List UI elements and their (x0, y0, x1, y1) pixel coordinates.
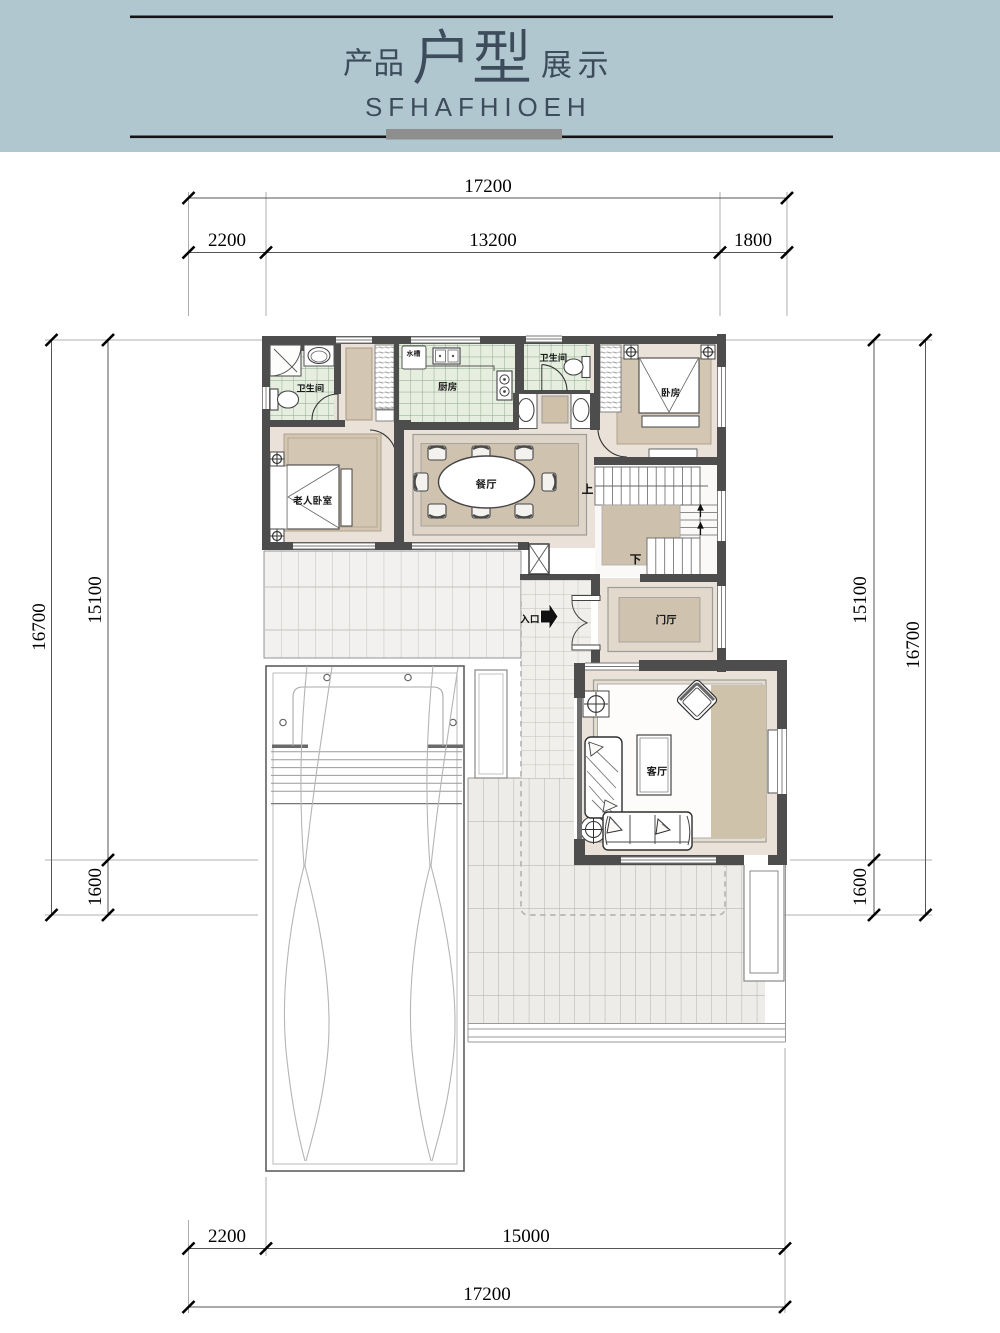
svg-text:15100: 15100 (85, 576, 106, 624)
svg-text:SFHAFHIOEH: SFHAFHIOEH (365, 92, 592, 122)
svg-text:2200: 2200 (208, 230, 246, 251)
svg-text:1800: 1800 (734, 230, 772, 251)
svg-text:1600: 1600 (85, 868, 106, 906)
svg-text:17200: 17200 (464, 176, 512, 197)
svg-text:13200: 13200 (469, 230, 517, 251)
svg-text:17200: 17200 (463, 1284, 511, 1305)
svg-text:2200: 2200 (208, 1226, 246, 1247)
svg-text:15100: 15100 (850, 576, 871, 624)
svg-text:15000: 15000 (502, 1226, 550, 1247)
svg-text:16700: 16700 (903, 621, 924, 669)
svg-text:1600: 1600 (850, 868, 871, 906)
svg-text:16700: 16700 (29, 603, 50, 651)
